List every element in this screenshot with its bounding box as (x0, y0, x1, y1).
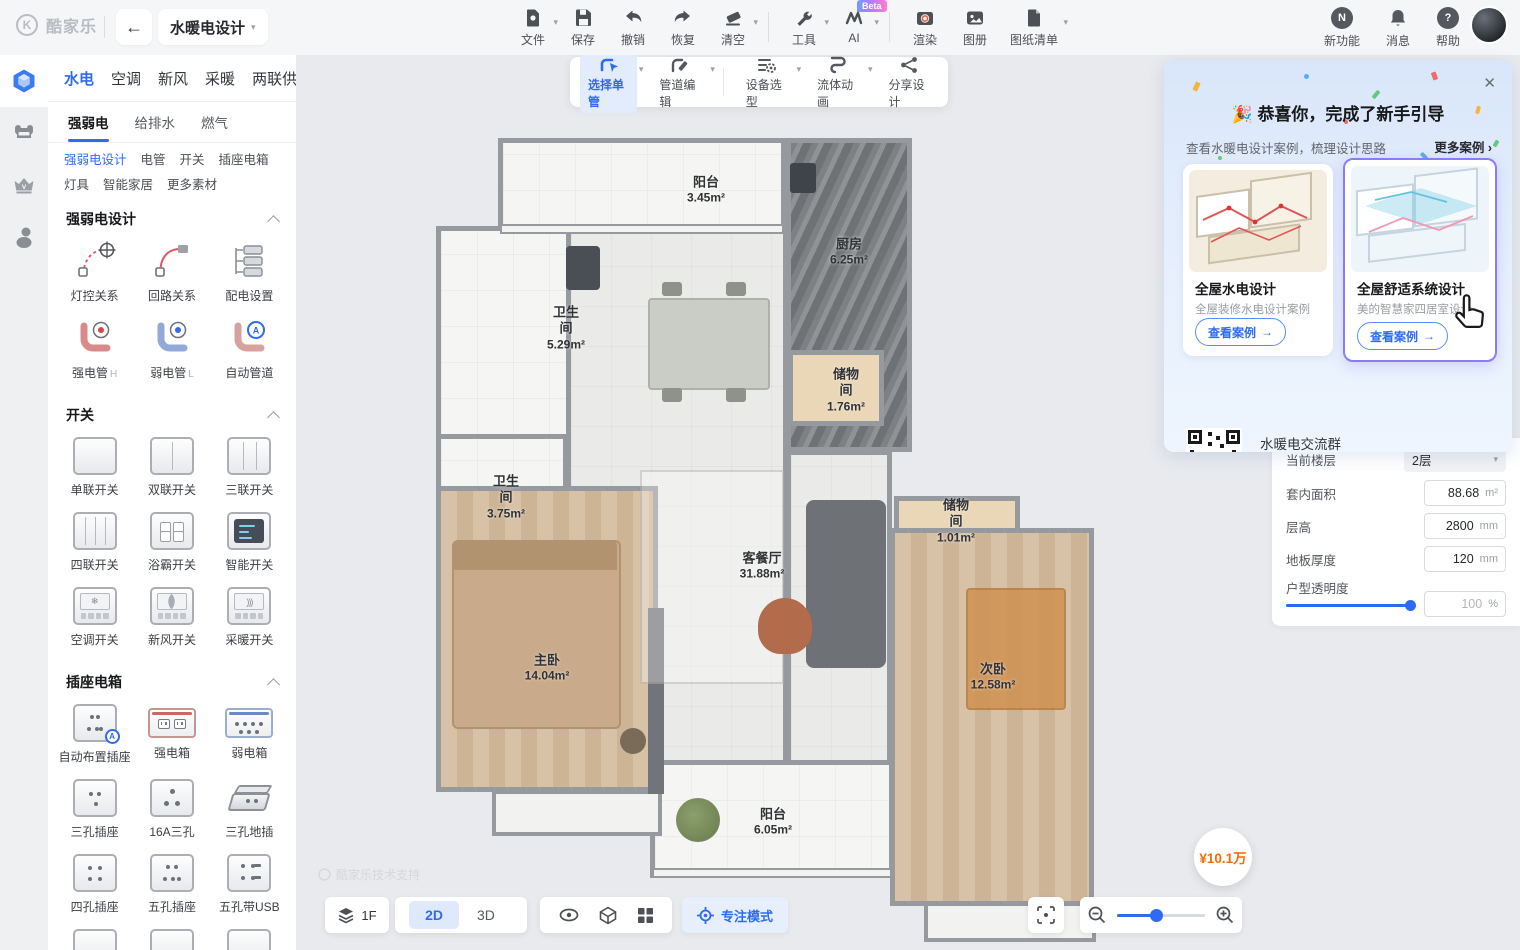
catalog-item-strong-conduit[interactable]: 强电管H (56, 318, 133, 381)
chevron-down-icon: ▾ (639, 64, 644, 75)
auto-socket-icon: A (73, 704, 117, 742)
pipe-edit-button[interactable]: 管道编辑 ▾ (651, 52, 708, 113)
zoom-slider[interactable] (1117, 914, 1205, 917)
view-mode-toggle: 2D 3D (395, 897, 527, 933)
drawing-list-button[interactable]: 图纸清单 ▾ (1010, 7, 1058, 48)
five-hole-usb-socket-icon (227, 854, 271, 892)
opacity-input[interactable]: 100% (1424, 591, 1506, 617)
redo-label: 恢复 (671, 31, 695, 48)
strong-conduit-icon (72, 318, 118, 358)
equipment-selection-button[interactable]: 设备选型 ▾ (738, 52, 795, 113)
catalog-item-circuit-relation[interactable]: 回路关系 (133, 241, 210, 304)
layers-icon (337, 906, 355, 924)
left-icon-rail: V (0, 55, 48, 950)
catalog-item-bath-heater-switch[interactable]: 浴霸开关 (133, 512, 210, 573)
share-design-button[interactable]: 分享设计 (881, 52, 938, 113)
price-badge[interactable]: ¥10.1万 (1194, 828, 1252, 886)
link-switch[interactable]: 开关 (180, 153, 205, 168)
view-case-button[interactable]: 查看案例 → (1195, 318, 1286, 346)
catalog-item-cutoff[interactable] (56, 929, 133, 950)
category-subtabs: 强弱电 给排水 燃气 (48, 102, 296, 143)
divider (723, 68, 724, 96)
catalog-item-label: 三联开关 (225, 481, 273, 498)
catalog-item-label: 强电管H (72, 364, 117, 381)
case-thumbnail (1189, 170, 1327, 272)
light-control-icon (72, 241, 118, 281)
clear-button[interactable]: 清空 ▾ (718, 7, 748, 48)
chevron-down-icon: ▾ (251, 22, 256, 33)
circuit-relation-icon (149, 241, 195, 281)
messages-label: 消息 (1386, 32, 1410, 49)
onboarding-subtitle: 查看水暖电设计案例，梳理设计思路 (1186, 138, 1386, 157)
catalog-item-label: 三孔地插 (225, 823, 273, 840)
room-label: 卫生间5.29m² (547, 304, 585, 352)
subtab-water-drainage[interactable]: 给排水 (135, 102, 176, 142)
fluid-animation-button[interactable]: 流体动画 ▾ (809, 52, 866, 113)
room-label: 次卧12.58m² (971, 661, 1016, 692)
chevron-up-icon (267, 411, 280, 424)
zoom-in-icon[interactable] (1215, 905, 1235, 925)
inner-area-label: 套内面积 (1286, 484, 1336, 503)
case-desc: 全屋装修水电设计案例 (1195, 301, 1321, 317)
catalog-item-light-control[interactable]: 灯控关系 (56, 241, 133, 304)
tools-label: 工具 (792, 31, 816, 48)
save-label: 保存 (571, 31, 595, 48)
help-label: 帮助 (1436, 32, 1460, 49)
case-card-hydropower[interactable]: 全屋水电设计 全屋装修水电设计案例 查看案例 → (1183, 164, 1333, 356)
hotkey-l: L (188, 369, 194, 380)
socket-icon (73, 929, 117, 950)
window-bay-second (924, 902, 1096, 942)
logo-text: 酷家乐 (46, 13, 97, 37)
confetti (1372, 90, 1381, 99)
share-design-label: 分享设计 (889, 76, 930, 110)
crown-icon: V (11, 172, 37, 198)
room-label: 主卧14.04m² (525, 652, 570, 683)
catalog-item-label: 自动布置插座 (59, 748, 131, 765)
select-pipe-label: 选择单管 (588, 76, 629, 110)
properties-panel: 当前楼层 2层▾ 套内面积 88.68m² 层高 2800mm 地板厚度 120… (1272, 438, 1520, 626)
file-button[interactable]: 文件 ▾ (518, 7, 548, 48)
person-icon (11, 224, 37, 250)
select-single-pipe-button[interactable]: 选择单管 ▾ (580, 52, 637, 113)
share-icon (898, 55, 920, 75)
auto-pipeline-icon: A (226, 318, 272, 358)
album-label: 图册 (963, 31, 987, 48)
section-header-sockets[interactable]: 插座电箱 (48, 660, 296, 698)
catalog-item-label: 自动管道 (225, 364, 273, 381)
file-label: 文件 (521, 31, 545, 48)
render-label: 渲染 (913, 31, 937, 48)
link-smart-home[interactable]: 智能家居 (103, 178, 153, 193)
catalog-item-weak-conduit[interactable]: 弱电管L (133, 318, 210, 381)
subtab-label: 燃气 (201, 112, 228, 132)
catalog-item-label: 浴霸开关 (148, 556, 196, 573)
dining-chair[interactable] (726, 282, 746, 296)
undo-button[interactable]: 撤销 (618, 7, 648, 48)
weak-conduit-icon (149, 318, 195, 358)
room-second-bedroom[interactable] (890, 528, 1094, 906)
link-conduit[interactable]: 电管 (141, 153, 166, 168)
catalog-item-strong-box[interactable]: 强电箱 (133, 704, 210, 765)
subtab-strong-weak-electric[interactable]: 强弱电 (68, 102, 109, 142)
kujiale-logo-icon: K (16, 14, 38, 36)
zoom-controls (1080, 897, 1242, 933)
balcony-rail (652, 868, 892, 878)
case-thumbnail (1351, 166, 1489, 272)
rail-hydropower-module[interactable] (0, 55, 48, 107)
section-title: 强弱电设计 (66, 209, 136, 229)
chevron-down-icon: ▾ (753, 17, 758, 28)
tab-hydropower[interactable]: 水电 (64, 68, 94, 89)
confetti (1493, 139, 1500, 147)
catalog-item-label: 配电设置 (225, 287, 273, 304)
zoom-out-icon[interactable] (1087, 905, 1107, 925)
storey-height-input[interactable]: 2800mm (1424, 513, 1506, 539)
catalog-item-cutoff[interactable] (133, 929, 210, 950)
undo-label: 撤销 (621, 31, 645, 48)
save-icon (572, 7, 594, 29)
armchair[interactable] (758, 598, 812, 654)
focus-mode-button[interactable]: 专注模式 (682, 897, 788, 933)
catalog-item-auto-pipeline[interactable]: A 自动管道 (211, 318, 288, 381)
back-arrow-icon: ← (125, 17, 143, 38)
catalog-item-label: 回路关系 (148, 287, 196, 304)
dining-chair[interactable] (726, 388, 746, 402)
socket-icon (150, 929, 194, 950)
chevron-down-icon: ▾ (874, 17, 879, 28)
floor-label: 当前楼层 (1286, 450, 1336, 469)
catalog-item-label: 四联开关 (71, 556, 119, 573)
rail-account-module[interactable] (0, 211, 48, 263)
catalog-item-ac-switch[interactable]: ❄ 空调开关 (56, 587, 133, 648)
catalog-item-label: 三孔插座 (71, 823, 119, 840)
app-logo[interactable]: K 酷家乐 (16, 13, 97, 37)
tab-dual-supply[interactable]: 两联供 (252, 68, 296, 89)
heating-switch-icon: ))) (227, 587, 271, 625)
link-lighting[interactable]: 灯具 (64, 178, 89, 193)
user-avatar[interactable] (1472, 8, 1506, 42)
top-bar: K 酷家乐 ← 水暖电设计 ▾ 文件 ▾ 保存 撤销 恢复 清空 ▾ (0, 0, 1520, 55)
focus-target-icon (697, 907, 714, 924)
chevron-down-icon: ▾ (1063, 17, 1068, 28)
beta-badge: Beta (857, 0, 887, 12)
label-text: 弱电管 (150, 366, 186, 380)
catalog-item-5hole-usb-socket[interactable]: 五孔带USB (211, 854, 288, 915)
catalog-item-double-switch[interactable]: 双联开关 (133, 437, 210, 498)
svg-text:V: V (22, 184, 27, 191)
floor-value: 1F (361, 908, 376, 923)
close-icon[interactable]: ✕ (1483, 74, 1496, 92)
catalog-item-label: 四孔插座 (71, 898, 119, 915)
link-more-materials[interactable]: 更多素材 (167, 178, 217, 193)
catalog-item-label: 双联开关 (148, 481, 196, 498)
module-tabs: 水电 空调 新风 采暖 两联供 (48, 55, 296, 102)
ac-switch-icon: ❄ (73, 587, 117, 625)
subtab-label: 给排水 (135, 112, 176, 132)
catalog-item-label: 灯控关系 (71, 287, 119, 304)
distribution-tree-icon (226, 241, 272, 281)
dining-table[interactable] (648, 298, 770, 390)
messages-button[interactable]: 消息 (1386, 7, 1410, 49)
catalog-item-heating-switch[interactable]: ))) 采暖开关 (211, 587, 288, 648)
camera-icon (914, 7, 936, 29)
document-list-icon (1023, 7, 1045, 29)
watermark-logo-icon (318, 868, 331, 881)
clear-label: 清空 (721, 31, 745, 48)
project-menu-button[interactable]: 水暖电设计 ▾ (158, 9, 268, 45)
chevron-down-icon: ▾ (1493, 454, 1498, 465)
render-button[interactable]: 渲染 (910, 7, 940, 48)
view-3d-button[interactable]: 3D (459, 907, 513, 923)
rail-vip-module[interactable]: V (0, 159, 48, 211)
quick-links: 强弱电设计 电管 开关 插座电箱 灯具 智能家居 更多素材 (48, 143, 296, 197)
catalog-item-weak-box[interactable]: 弱电箱 (211, 704, 288, 765)
catalog-item-distribution-settings[interactable]: 配电设置 (211, 241, 288, 304)
chevron-down-icon: ▾ (824, 17, 829, 28)
help-button[interactable]: ? 帮助 (1436, 7, 1460, 49)
n-badge-icon: N (1331, 7, 1353, 29)
section-header-sw-design[interactable]: 强弱电设计 (48, 197, 296, 235)
visibility-eye-icon[interactable] (559, 907, 579, 923)
divider (104, 16, 105, 38)
sofa[interactable] (806, 500, 886, 668)
view-case-button[interactable]: 查看案例 → (1357, 322, 1448, 350)
bath-heater-switch-icon (150, 512, 194, 550)
catalog-item-quad-switch[interactable]: 四联开关 (56, 512, 133, 573)
watermark: 酷家乐技术支持 (318, 866, 420, 883)
four-hole-socket-icon (73, 854, 117, 892)
inner-area-input[interactable]: 88.68m² (1424, 480, 1506, 506)
svg-text:A: A (253, 326, 260, 336)
sofa-icon (11, 120, 37, 146)
floor-thickness-label: 地板厚度 (1286, 550, 1336, 569)
smart-switch-icon (227, 512, 271, 550)
canvas-toolbar: 选择单管 ▾ 管道编辑 ▾ 设备选型 ▾ 流体动画 ▾ 分享设计 (570, 57, 948, 107)
room-label: 阳台3.45m² (687, 174, 725, 205)
section-grid-sockets: A 自动布置插座 强电箱 弱电箱 三孔插座 16A三孔 三孔地插 四孔插座 (48, 698, 296, 950)
catalog-item-4hole-socket[interactable]: 四孔插座 (56, 854, 133, 915)
five-hole-socket-icon (150, 854, 194, 892)
catalog-item-label: 空调开关 (71, 631, 119, 648)
catalog-item-floor-socket[interactable]: 三孔地插 (211, 779, 288, 840)
qr-group: 水暖电交流群 进群反馈问题 (1186, 428, 1341, 452)
catalog-item-label: 弱电管L (150, 364, 194, 381)
back-button[interactable]: ← (116, 9, 152, 45)
single-switch-icon (73, 437, 117, 475)
confetti (1192, 81, 1200, 91)
room-label: 储物间1.01m² (937, 497, 975, 545)
catalog-item-auto-socket[interactable]: A 自动布置插座 (56, 704, 133, 765)
catalog-item-16a-socket[interactable]: 16A三孔 (133, 779, 210, 840)
room-label: 客餐厅31.88m² (740, 550, 785, 581)
catalog-item-label: 单联开关 (71, 481, 119, 498)
room-label: 阳台6.05m² (754, 806, 792, 837)
weak-box-icon (225, 708, 273, 738)
tab-heating[interactable]: 采暖 (205, 68, 235, 89)
bell-icon (1387, 7, 1409, 29)
equipment-selection-label: 设备选型 (746, 76, 787, 110)
floor-selector[interactable]: 1F (325, 897, 389, 933)
undo-icon (622, 7, 644, 29)
sixteen-a-socket-icon (150, 779, 194, 817)
catalog-item-smart-switch[interactable]: 智能开关 (211, 512, 288, 573)
tools-button[interactable]: 工具 ▾ (789, 7, 819, 48)
pipe-edit-label: 管道编辑 (659, 76, 700, 110)
catalog-item-single-switch[interactable]: 单联开关 (56, 437, 133, 498)
storey-height-label: 层高 (1286, 517, 1311, 536)
save-button[interactable]: 保存 (568, 7, 598, 48)
eraser-icon (722, 7, 744, 29)
fluid-animation-icon (827, 55, 849, 75)
section-title: 开关 (66, 405, 94, 425)
subtab-label: 强弱电 (68, 112, 109, 132)
onboarding-panel: ✕ 🎉 恭喜你，完成了新手引导 查看水暖电设计案例，梳理设计思路 更多案例 › … (1164, 60, 1512, 452)
section-grid-sw-design: 灯控关系 回路关系 配电设置 强电管H 弱电管L A 自动管道 (48, 235, 296, 393)
redo-icon (672, 7, 694, 29)
catalog-item-label: 强电箱 (154, 744, 190, 761)
section-header-switches[interactable]: 开关 (48, 393, 296, 431)
focus-mode-label: 专注模式 (721, 906, 773, 925)
pipe-edit-icon (669, 55, 691, 75)
zoom-slider-knob[interactable] (1150, 909, 1163, 922)
cube-view-icon[interactable] (599, 906, 617, 925)
floor-socket-icon (226, 779, 272, 817)
drawing-list-label: 图纸清单 (1010, 31, 1058, 48)
chevron-up-icon (267, 215, 280, 228)
catalog-item-label: 采暖开关 (225, 631, 273, 648)
chevron-up-icon (267, 678, 280, 691)
label-text: 强电管 (72, 366, 108, 380)
confetti (1304, 74, 1309, 79)
confetti (1431, 71, 1438, 80)
fridge[interactable] (790, 163, 816, 193)
tab-fresh-air[interactable]: 新风 (158, 68, 188, 89)
tab-ac[interactable]: 空调 (111, 68, 141, 89)
catalog-item-label: 五孔带USB (219, 898, 280, 915)
room-balcony-top[interactable] (498, 138, 786, 232)
double-switch-icon (150, 437, 194, 475)
divider (768, 12, 769, 42)
link-sw-design[interactable]: 强弱电设计 (64, 153, 127, 168)
catalog-item-5hole-socket[interactable]: 五孔插座 (133, 854, 210, 915)
bed-pillow-strip (452, 540, 617, 570)
catalog-item-cutoff[interactable] (211, 929, 288, 950)
chevron-down-icon: ▾ (868, 64, 873, 75)
window-strip (500, 224, 784, 234)
section-grid-switches: 单联开关 双联开关 三联开关 四联开关 浴霸开关 智能开关 ❄ 空调开关 新风开 (48, 431, 296, 660)
qr-code (1186, 428, 1242, 452)
view-options (540, 897, 672, 933)
strong-box-icon (148, 708, 196, 738)
ai-label: AI (848, 31, 859, 45)
album-button[interactable]: 图册 (960, 7, 990, 48)
catalog-item-label: 五孔插座 (148, 898, 196, 915)
catalog-item-triple-switch[interactable]: 三联开关 (211, 437, 288, 498)
select-pipe-icon (598, 55, 620, 75)
picture-icon (964, 7, 986, 29)
chevron-down-icon: ▾ (553, 17, 558, 28)
divider (889, 12, 890, 42)
room-label: 储物间1.76m² (827, 366, 865, 414)
catalog-item-fresh-air-switch[interactable]: 新风开关 (133, 587, 210, 648)
hand-cursor-icon (1452, 292, 1490, 336)
quad-switch-icon (73, 512, 117, 550)
view-2d-button[interactable]: 2D (409, 901, 459, 929)
washer[interactable] (566, 246, 600, 290)
file-icon (522, 7, 544, 29)
fit-view-button[interactable] (1028, 897, 1064, 933)
fit-screen-icon (1037, 906, 1055, 924)
catalog-item-label: 弱电箱 (231, 744, 267, 761)
wrench-icon (793, 7, 815, 29)
catalog-item-3hole-socket[interactable]: 三孔插座 (56, 779, 133, 840)
redo-button[interactable]: 恢复 (668, 7, 698, 48)
onboarding-title: 🎉 恭喜你，完成了新手引导 (1164, 100, 1512, 125)
hotkey-h: H (110, 369, 117, 380)
grid-layout-icon[interactable] (637, 907, 654, 924)
triple-switch-icon (227, 437, 271, 475)
equipment-icon (755, 55, 777, 75)
case-title: 全屋水电设计 (1195, 278, 1321, 298)
dining-chair[interactable] (662, 282, 682, 296)
active-underline (68, 139, 109, 142)
room-label: 卫生间3.75m² (487, 473, 525, 521)
ai-button[interactable]: Beta AI ▾ (839, 7, 869, 45)
link-socket-box[interactable]: 插座电箱 (219, 153, 269, 168)
cube-3d-icon (11, 68, 37, 94)
fresh-air-switch-icon (150, 587, 194, 625)
project-title: 水暖电设计 (170, 17, 245, 38)
floor-thickness-input[interactable]: 120mm (1424, 546, 1506, 572)
new-features-button[interactable]: N 新功能 (1324, 7, 1360, 49)
rail-furniture-module[interactable] (0, 107, 48, 159)
socket-icon (227, 929, 271, 950)
qr-text: 水暖电交流群 进群反馈问题 (1260, 434, 1341, 452)
chevron-down-icon: ▾ (797, 64, 802, 75)
new-features-label: 新功能 (1324, 32, 1360, 49)
floor-value: 2层 (1412, 450, 1431, 469)
catalog-item-label: 新风开关 (148, 631, 196, 648)
subtab-gas[interactable]: 燃气 (201, 102, 228, 142)
chevron-down-icon: ▾ (710, 64, 715, 75)
window-bay-master (492, 790, 662, 836)
catalog-panel: 水电 空调 新风 采暖 两联供 强弱电 给排水 燃气 强弱电设计 电管 开关 插… (48, 55, 296, 950)
three-hole-socket-icon (73, 779, 117, 817)
section-title: 插座电箱 (66, 672, 122, 692)
more-cases-link[interactable]: 更多案例 › (1434, 137, 1492, 156)
fluid-animation-label: 流体动画 (817, 76, 858, 110)
catalog-item-label: 16A三孔 (149, 823, 194, 840)
dining-chair[interactable] (662, 388, 682, 402)
question-icon: ? (1437, 7, 1459, 29)
stool[interactable] (620, 728, 646, 754)
room-label: 厨房6.25m² (830, 236, 868, 267)
plant[interactable] (676, 798, 720, 842)
catalog-item-label: 智能开关 (225, 556, 273, 573)
